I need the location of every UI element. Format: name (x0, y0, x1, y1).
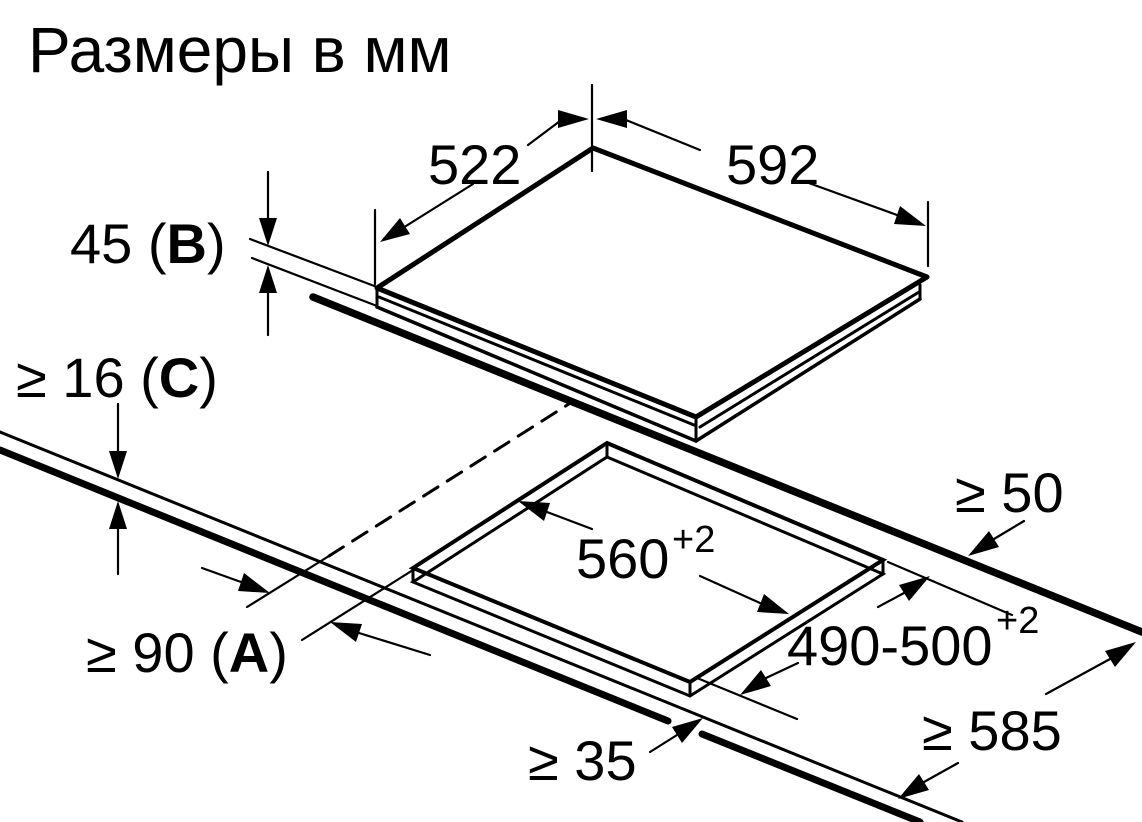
technical-drawing: Размеры в мм 522 592 45 (B) ≥ 16 (C) 560… (0, 0, 1142, 822)
dim-label-560: 560 (576, 527, 669, 590)
dim-label-35: ≥ 35 (528, 729, 637, 792)
arrowhead-35 (672, 718, 703, 743)
cooktop-body-left (377, 307, 696, 441)
worktop-front-edge-right (702, 734, 920, 822)
dim-label-16-C: ≥ 16 (C) (16, 346, 218, 409)
dimension-lines (109, 85, 1136, 799)
arrowhead-50 (968, 531, 999, 556)
dim-label-592: 592 (726, 133, 819, 196)
leader-585-top (1046, 659, 1110, 694)
extension-line-490-bottom (697, 678, 797, 719)
cooktop-body-right (696, 299, 920, 441)
dim-label-490-500-tolerance: +2 (996, 600, 1039, 642)
leader-90-left (202, 568, 241, 582)
dim-label-45-B: 45 (B) (70, 212, 226, 275)
dim-label-50: ≥ 50 (955, 461, 1064, 524)
leader-90-right (359, 633, 430, 655)
arrowhead-585-bottom (898, 774, 929, 799)
leader-522-apex (528, 121, 560, 145)
arrowhead-585-top (1105, 642, 1136, 667)
arrowhead-90-left (238, 573, 270, 593)
diagram-page: Размеры в мм 522 592 45 (B) ≥ 16 (C) 560… (0, 0, 1142, 822)
page-title: Размеры в мм (28, 14, 452, 86)
arrowhead-16-top (109, 451, 127, 479)
leader-592 (806, 182, 897, 215)
arrowhead-16-bottom (109, 501, 127, 529)
arrowhead-90-right (330, 622, 362, 642)
arrowhead-592 (894, 206, 926, 226)
dim-label-90-A: ≥ 90 (A) (86, 621, 288, 684)
arrowhead-apex-left (558, 110, 589, 128)
arrowhead-490-bottom (740, 670, 771, 695)
cooktop-lip-right (700, 292, 919, 427)
leader-585-bottom (924, 763, 958, 782)
arrowhead-490-top (899, 576, 930, 601)
leader-490-top (878, 593, 904, 607)
leader-35 (650, 735, 677, 752)
cooktop-lip-left (379, 297, 694, 425)
projection-dashed-line (329, 402, 572, 556)
dim-label-560-tolerance: +2 (672, 519, 715, 561)
leader-592-apex (626, 120, 700, 150)
arrowhead-560-right (757, 594, 789, 614)
arrowhead-45-bottom (259, 265, 277, 293)
dim-label-490-500: 490-500 (787, 614, 993, 677)
arrowhead-45-top (259, 218, 277, 246)
dim-label-522: 522 (428, 133, 521, 196)
leader-560-right (700, 576, 760, 603)
arrowhead-apex-right (596, 110, 627, 128)
arrowhead-522 (380, 218, 410, 242)
dim-label-585: ≥ 585 (922, 699, 1062, 762)
